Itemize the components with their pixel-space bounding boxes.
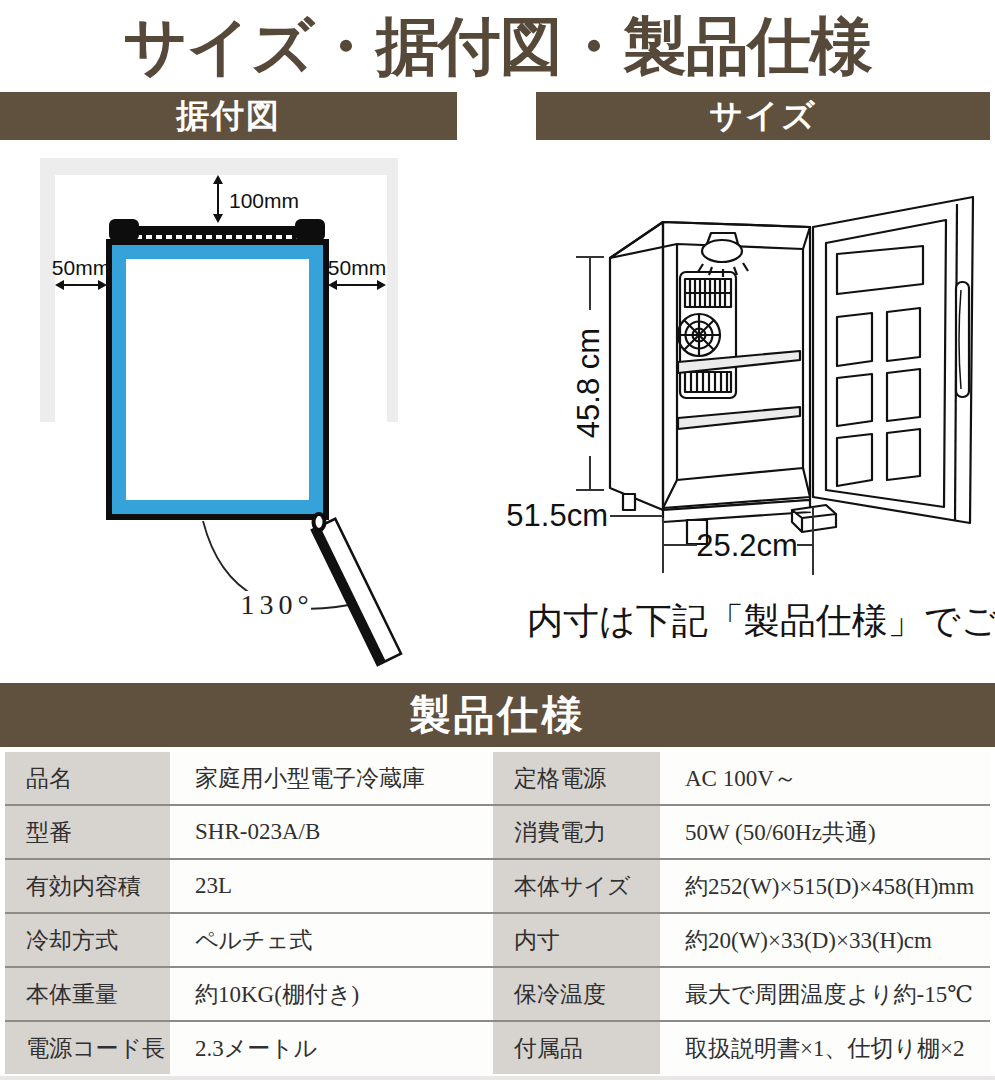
door-handle: [956, 282, 969, 397]
shelf-upper: [678, 351, 800, 373]
specs-section-header: 製品仕様: [0, 683, 995, 747]
clearance-arrow-right: [328, 280, 386, 290]
spec-value: 50W (50/60Hz共通): [660, 806, 990, 858]
spec-value: AC 100V～: [660, 752, 990, 804]
fridge-door: [813, 197, 973, 523]
spec-label: 本体重量: [5, 968, 170, 1020]
depth-dimension: [610, 516, 663, 573]
width-dimension-label: 25.2cm: [696, 528, 798, 563]
spec-label: 本体サイズ: [493, 860, 660, 912]
depth-dimension-label: 51.5cm: [506, 498, 608, 533]
hinge-bump-right: [295, 219, 325, 241]
spec-label: 有効内容積: [5, 860, 170, 912]
spec-value: 約10KG(棚付き): [170, 968, 493, 1020]
bottom-strip: [0, 1076, 995, 1080]
spec-label: 保冷温度: [493, 968, 660, 1020]
interior-light: [698, 233, 748, 277]
spec-value: 23L: [170, 860, 493, 912]
vent-grille-bottom: [685, 372, 731, 392]
fridge-top-view: [109, 219, 326, 517]
spec-value: ペルチェ式: [170, 914, 493, 966]
clearance-arrow-top: [213, 175, 223, 223]
height-dimension-label: 45.8 cm: [571, 328, 606, 438]
foot-back: [623, 494, 635, 510]
hinge-bump-left: [109, 219, 139, 241]
shelf-lower: [678, 407, 800, 429]
clearance-top-label: 100mm: [229, 189, 299, 212]
installation-section-header: 据付図: [0, 92, 457, 140]
spec-value: 約20(W)×33(D)×33(H)cm: [660, 914, 990, 966]
spec-value: 約252(W)×515(D)×458(H)mm: [660, 860, 990, 912]
clearance-left-label: 50mm: [52, 256, 110, 279]
spec-value: SHR-023A/B: [170, 806, 493, 858]
open-door: [312, 519, 401, 665]
page-title: サイズ・据付図・製品仕様: [0, 0, 995, 92]
spec-label: 冷却方式: [5, 914, 170, 966]
spec-value: 家庭用小型電子冷蔵庫: [170, 752, 493, 804]
spec-label: 品名: [5, 752, 170, 804]
door-angle-label: 130°: [240, 589, 313, 620]
installation-header-label: 据付図: [176, 97, 281, 134]
specs-header-label: 製品仕様: [410, 692, 586, 738]
cooling-fan: [678, 314, 720, 356]
fridge-size-drawing: 45.8 cm 51.5cm 25.2cm: [500, 150, 995, 590]
spec-table: 品名 家庭用小型電子冷蔵庫 定格電源 AC 100V～ 型番 SHR-023A/…: [5, 752, 990, 1074]
spec-label: 付属品: [493, 1022, 660, 1074]
rear-vent-bar: [137, 226, 298, 235]
clearance-right-label: 50mm: [328, 256, 386, 279]
spec-label: 型番: [5, 806, 170, 858]
installation-diagram: 100mm 50mm 50mm 130°: [0, 150, 500, 670]
clearance-arrow-left: [55, 280, 107, 290]
spec-label: 消費電力: [493, 806, 660, 858]
size-section-header: サイズ: [536, 92, 990, 140]
spec-label: 定格電源: [493, 752, 660, 804]
inner-size-note: 内寸は下記「製品仕様」でご確認: [527, 597, 993, 646]
door-hinge-pin: [314, 514, 325, 530]
spec-label: 内寸: [493, 914, 660, 966]
spec-label: 電源コード長: [5, 1022, 170, 1074]
vent-grille-top: [685, 279, 731, 307]
size-header-label: サイズ: [709, 97, 816, 134]
spec-value: 2.3メートル: [170, 1022, 493, 1074]
product-spec-infographic: サイズ・据付図・製品仕様 据付図 サイズ: [0, 0, 995, 1080]
cabinet-left-panel: [610, 222, 663, 510]
spec-value: 最大で周囲温度より約-15℃: [660, 968, 990, 1020]
spec-value: 取扱説明書×1、仕切り棚×2: [660, 1022, 990, 1074]
